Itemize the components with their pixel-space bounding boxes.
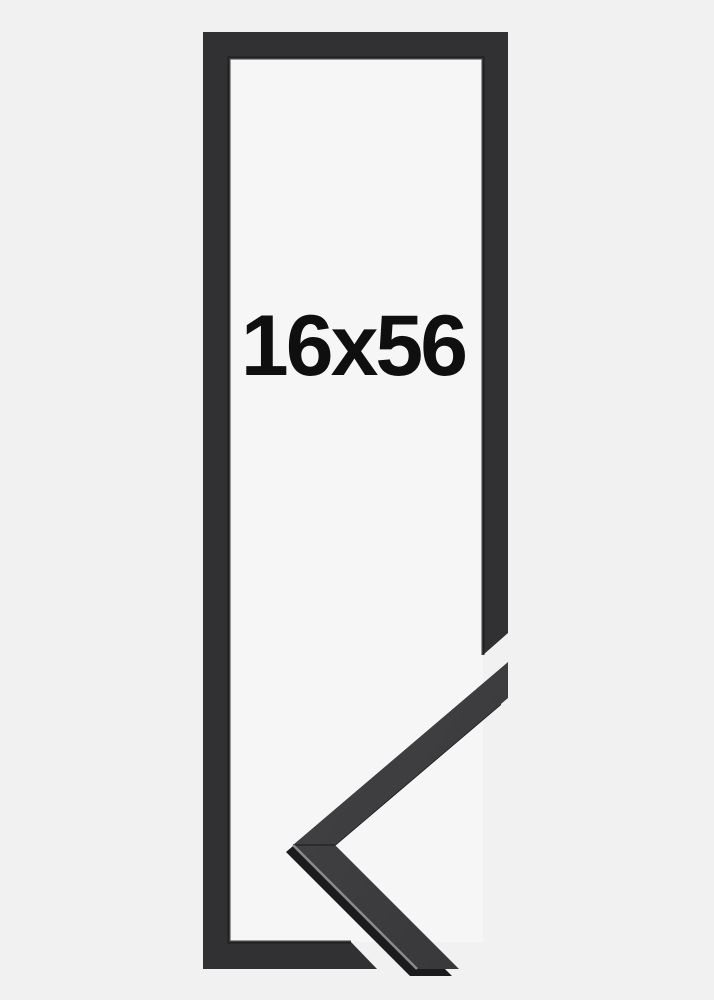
frame-product-illustration: 16x56: [0, 0, 714, 1000]
size-label: 16x56: [241, 298, 465, 394]
product-image: 16x56: [0, 0, 714, 1000]
